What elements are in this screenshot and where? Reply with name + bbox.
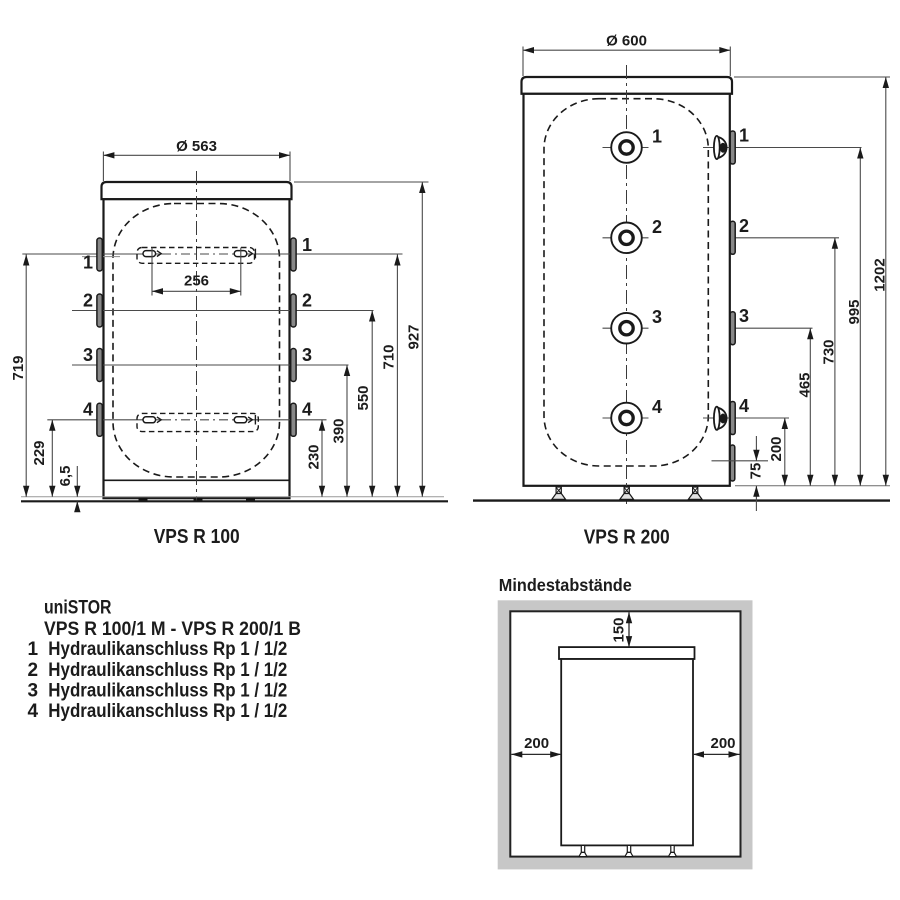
svg-text:2: 2 [652, 217, 662, 237]
svg-text:390: 390 [330, 418, 347, 443]
svg-text:3: 3 [28, 681, 39, 702]
svg-text:3: 3 [302, 345, 312, 365]
svg-text:2: 2 [302, 291, 312, 311]
svg-text:Ø 563: Ø 563 [176, 138, 217, 155]
svg-text:2: 2 [739, 216, 749, 236]
svg-text:256: 256 [184, 273, 209, 290]
svg-text:200: 200 [768, 436, 785, 461]
svg-text:1202: 1202 [872, 258, 889, 291]
svg-text:1: 1 [28, 639, 39, 660]
svg-text:1: 1 [652, 127, 662, 147]
svg-text:4: 4 [302, 400, 312, 420]
svg-text:3: 3 [83, 345, 93, 365]
svg-text:465: 465 [797, 372, 814, 397]
svg-text:Hydraulikanschluss Rp 1 / 1/2: Hydraulikanschluss Rp 1 / 1/2 [48, 660, 287, 681]
svg-text:927: 927 [406, 324, 423, 349]
svg-text:Hydraulikanschluss Rp 1 / 1/2: Hydraulikanschluss Rp 1 / 1/2 [48, 681, 287, 702]
svg-text:200: 200 [710, 735, 735, 752]
svg-text:3: 3 [652, 307, 662, 327]
svg-text:719: 719 [10, 355, 27, 380]
svg-text:uniSTOR: uniSTOR [44, 598, 112, 619]
svg-text:229: 229 [31, 440, 48, 465]
svg-text:VPS R 200: VPS R 200 [584, 526, 670, 548]
svg-text:6,5: 6,5 [57, 466, 74, 487]
svg-text:Hydraulikanschluss Rp 1 / 1/2: Hydraulikanschluss Rp 1 / 1/2 [48, 639, 287, 660]
svg-text:200: 200 [524, 735, 549, 752]
svg-text:2: 2 [28, 660, 39, 681]
svg-text:2: 2 [83, 291, 93, 311]
svg-text:710: 710 [381, 344, 398, 369]
svg-text:4: 4 [739, 396, 749, 416]
svg-text:550: 550 [355, 385, 372, 410]
svg-text:3: 3 [739, 306, 749, 326]
svg-text:1: 1 [83, 253, 93, 273]
svg-text:1: 1 [302, 235, 312, 255]
svg-text:730: 730 [821, 339, 838, 364]
svg-text:Mindestabstände: Mindestabstände [499, 575, 632, 595]
svg-text:995: 995 [846, 299, 863, 324]
svg-text:75: 75 [748, 463, 765, 480]
svg-text:150: 150 [611, 617, 628, 642]
svg-text:4: 4 [28, 701, 39, 722]
svg-text:VPS R 100: VPS R 100 [154, 526, 240, 548]
svg-text:230: 230 [306, 444, 323, 469]
svg-text:4: 4 [83, 400, 93, 420]
svg-text:Hydraulikanschluss Rp 1 / 1/2: Hydraulikanschluss Rp 1 / 1/2 [48, 701, 287, 722]
svg-text:1: 1 [739, 126, 749, 146]
svg-text:Ø 600: Ø 600 [606, 33, 647, 50]
svg-text:VPS R 100/1 M - VPS R 200/1 B: VPS R 100/1 M - VPS R 200/1 B [44, 619, 301, 640]
svg-text:4: 4 [652, 397, 662, 417]
